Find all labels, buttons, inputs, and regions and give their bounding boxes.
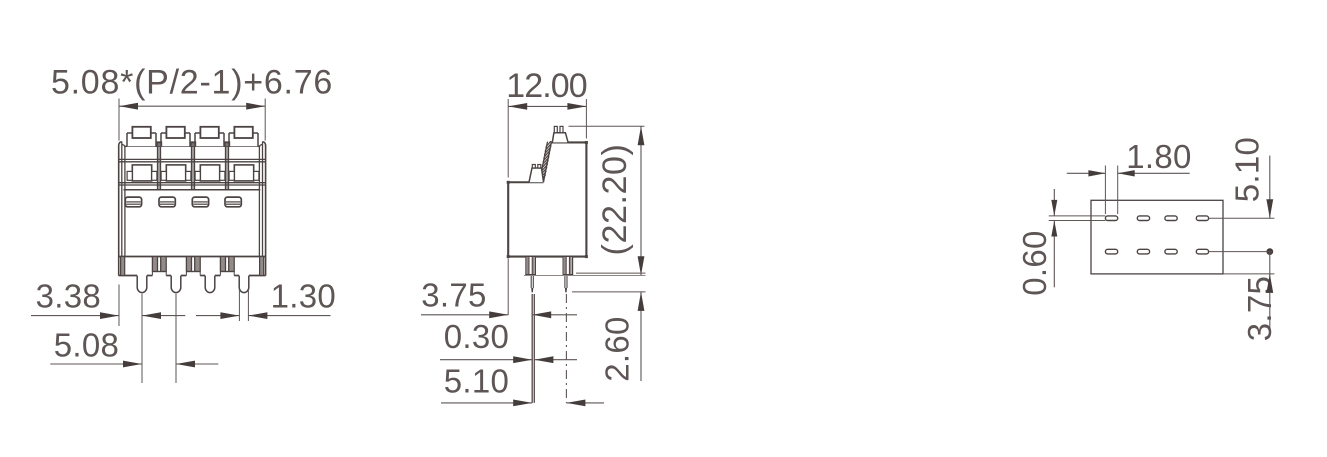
svg-text:5.10: 5.10: [1229, 137, 1266, 202]
svg-text:3.75: 3.75: [1241, 276, 1278, 341]
svg-text:5.08*(P/2-1)+6.76: 5.08*(P/2-1)+6.76: [51, 64, 333, 102]
svg-text:1.80: 1.80: [1126, 138, 1191, 175]
svg-text:5.08: 5.08: [54, 327, 119, 364]
svg-text:(22.20): (22.20): [596, 144, 634, 256]
svg-text:1.30: 1.30: [271, 277, 336, 314]
svg-text:0.60: 0.60: [1016, 230, 1053, 295]
svg-text:2.60: 2.60: [599, 316, 636, 381]
svg-text:0.30: 0.30: [444, 318, 509, 355]
svg-text:3.75: 3.75: [421, 276, 486, 313]
svg-text:3.38: 3.38: [36, 277, 101, 314]
svg-text:5.10: 5.10: [444, 363, 509, 400]
svg-text:12.00: 12.00: [506, 67, 587, 105]
